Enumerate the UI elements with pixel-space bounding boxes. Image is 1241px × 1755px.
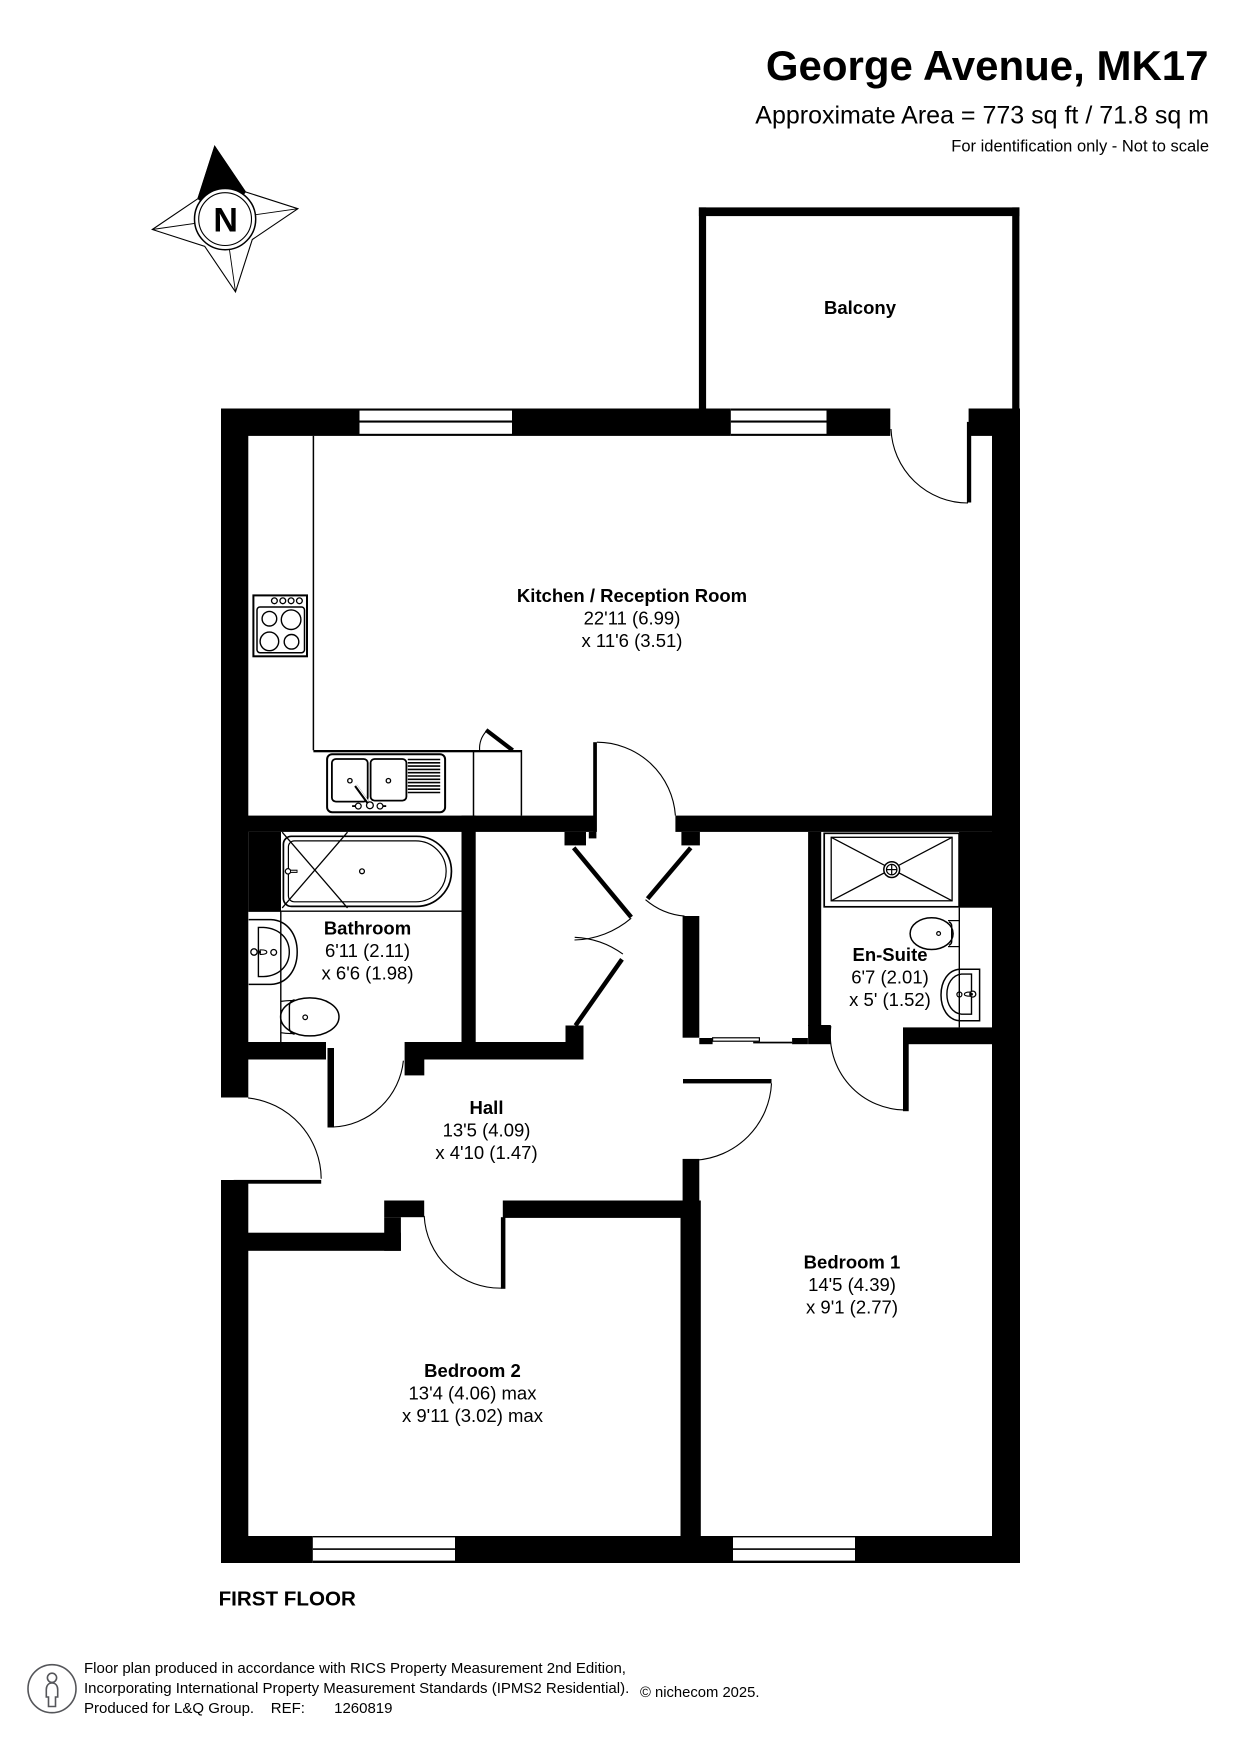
svg-text:14'5 (4.39): 14'5 (4.39) [808, 1274, 896, 1295]
svg-text:6'11 (2.11): 6'11 (2.11) [325, 940, 410, 961]
svg-text:George Avenue, MK17: George Avenue, MK17 [766, 42, 1209, 89]
svg-text:N: N [213, 202, 238, 240]
svg-text:Kitchen / Reception Room: Kitchen / Reception Room [517, 585, 747, 606]
svg-text:For identification only - Not: For identification only - Not to scale [951, 138, 1209, 156]
svg-text:Hall: Hall [470, 1097, 504, 1118]
svg-text:En-Suite: En-Suite [852, 944, 927, 965]
svg-text:x 11'6 (3.51): x 11'6 (3.51) [582, 630, 683, 651]
svg-text:Floor plan produced in accorda: Floor plan produced in accordance with R… [84, 1660, 626, 1677]
svg-text:13'5 (4.09): 13'5 (4.09) [443, 1120, 531, 1141]
svg-text:© nichecom 2025.: © nichecom 2025. [640, 1685, 759, 1701]
svg-text:Bedroom 1: Bedroom 1 [804, 1252, 901, 1273]
svg-text:Approximate Area = 773 sq ft /: Approximate Area = 773 sq ft / 71.8 sq m [755, 102, 1209, 130]
svg-text:x 4'10 (1.47): x 4'10 (1.47) [435, 1142, 537, 1163]
svg-text:Incorporating International Pr: Incorporating International Property Mea… [84, 1680, 629, 1697]
svg-text:Bathroom: Bathroom [324, 918, 411, 939]
svg-text:x 9'1 (2.77): x 9'1 (2.77) [806, 1297, 898, 1318]
svg-text:x 5' (1.52): x 5' (1.52) [849, 989, 931, 1010]
svg-text:13'4 (4.06) max: 13'4 (4.06) max [409, 1383, 538, 1404]
svg-text:FIRST FLOOR: FIRST FLOOR [219, 1588, 356, 1611]
svg-text:Balcony: Balcony [824, 297, 897, 318]
svg-text:6'7 (2.01): 6'7 (2.01) [851, 967, 929, 988]
svg-text:x 6'6 (1.98): x 6'6 (1.98) [322, 963, 414, 984]
svg-text:22'11 (6.99): 22'11 (6.99) [584, 608, 681, 629]
svg-text:x 9'11 (3.02) max: x 9'11 (3.02) max [402, 1405, 544, 1426]
svg-text:Bedroom 2: Bedroom 2 [424, 1360, 521, 1381]
svg-text:Produced for L&Q Group. REF: Produced for L&Q Group. REF: 1260819 [84, 1700, 393, 1717]
